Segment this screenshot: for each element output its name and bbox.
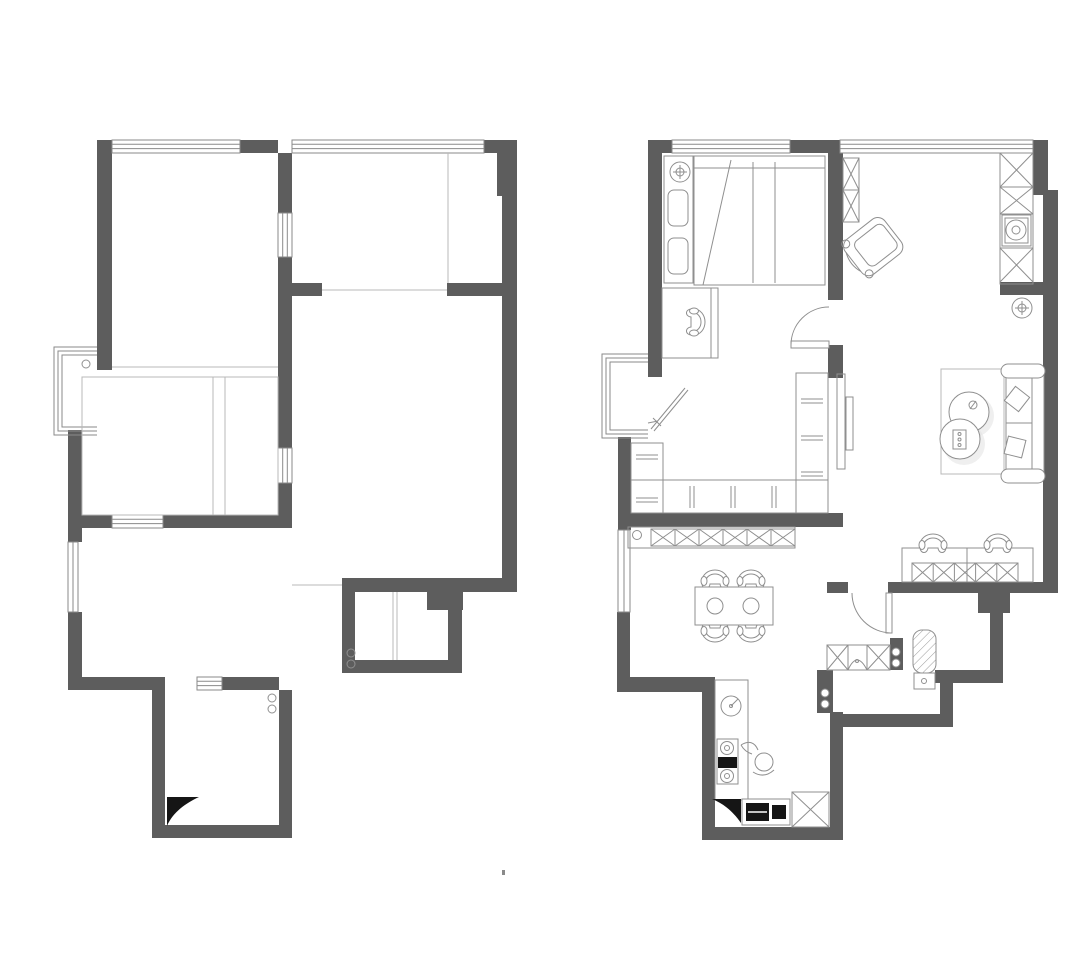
plumbing-circle (268, 694, 276, 702)
dining-chair (701, 623, 729, 642)
floor-plans-canvas (0, 0, 1080, 960)
kitchen-counter (715, 680, 748, 800)
writing-desk (662, 288, 718, 358)
sofa (1001, 364, 1045, 483)
round-sink (721, 696, 741, 716)
bathroom-door (852, 593, 892, 633)
door-stub-circle (821, 689, 829, 697)
bathroom (827, 593, 936, 689)
plumbing-circle (268, 705, 276, 713)
filled-door-leaf (167, 797, 199, 826)
dining-chair (701, 570, 729, 589)
full-length-mirror (648, 388, 688, 431)
left-plan-fixtures (82, 360, 355, 826)
left-floor-plan (54, 140, 517, 838)
toilet (913, 630, 936, 689)
ceiling-fan-icon (670, 162, 690, 182)
right-plan-walls (617, 140, 1058, 840)
double-bed (694, 156, 825, 285)
left-bay-window (54, 347, 97, 435)
vanity-with-basin (827, 645, 890, 670)
kitchen (712, 680, 829, 827)
dining-area (695, 570, 773, 642)
tv-panel (837, 374, 853, 469)
living-room (837, 153, 1045, 582)
lounge-chair (837, 213, 907, 282)
door-stub-circle (821, 700, 829, 708)
sideboard-cabinet (628, 527, 795, 548)
artifact-dot (502, 870, 505, 875)
hanging-rails (636, 399, 823, 508)
throw-pillow (1004, 436, 1026, 458)
desk-chair (686, 308, 705, 336)
tall-cabinet-column (1000, 153, 1033, 284)
washing-machine (1002, 215, 1031, 246)
left-plan-windows (54, 140, 484, 690)
wall-cabinet-strip (843, 158, 859, 222)
nesting-coffee-tables (940, 392, 994, 465)
cooktop (717, 739, 738, 784)
bedroom (662, 156, 829, 358)
dining-chair (737, 623, 765, 642)
door-stub-circle (892, 648, 900, 656)
filled-door-leaf (712, 799, 741, 823)
wardrobe-column (664, 156, 693, 283)
floor-drain-icon (1012, 298, 1032, 318)
right-bay-window (602, 354, 648, 438)
u-shaped-wardrobe (631, 373, 828, 513)
bedroom-door (791, 307, 829, 348)
dining-chair (737, 570, 765, 589)
cook-figure (741, 742, 774, 775)
door-stub-circle (892, 659, 900, 667)
floor-plan-drawing (0, 0, 1080, 960)
study-desk (902, 548, 1033, 582)
plumbing-circle (82, 360, 90, 368)
oven-appliances (742, 799, 790, 825)
storage-x-cabinet (792, 792, 829, 827)
right-floor-plan (602, 140, 1058, 840)
